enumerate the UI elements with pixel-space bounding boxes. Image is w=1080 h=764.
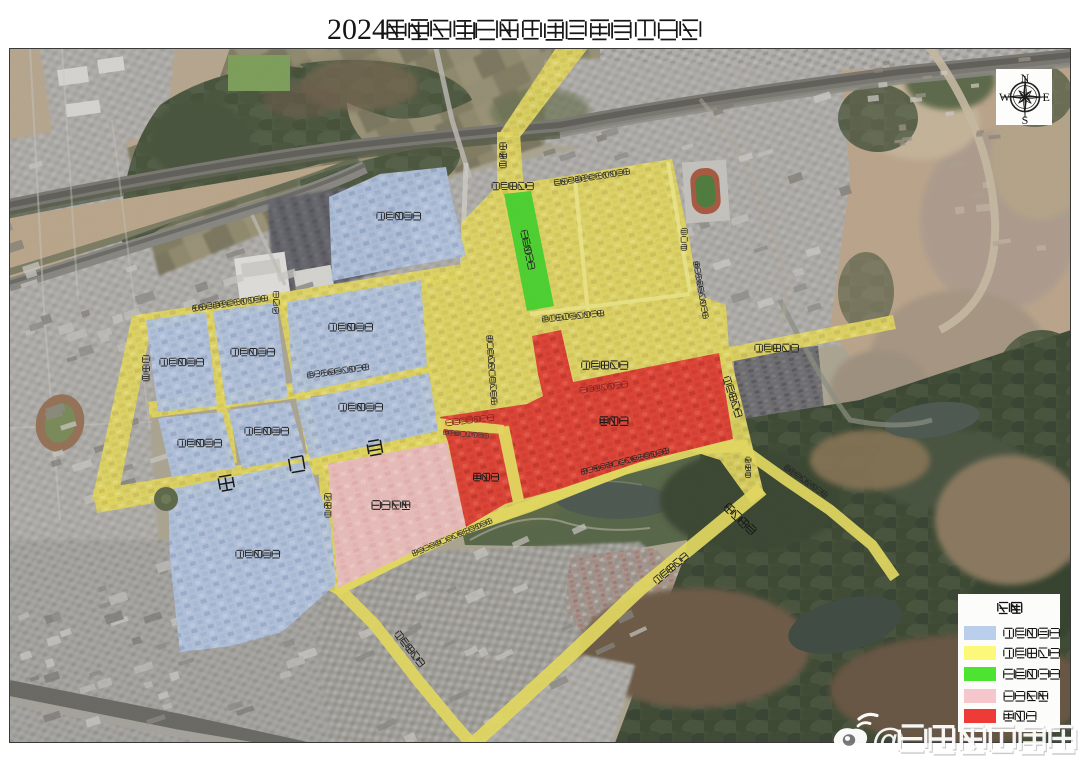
svg-text:E: E: [1043, 90, 1050, 104]
svg-text:W: W: [999, 90, 1011, 104]
svg-text:N: N: [1021, 71, 1030, 85]
svg-text:2024: 2024: [327, 13, 387, 46]
svg-text:S: S: [1022, 113, 1029, 127]
